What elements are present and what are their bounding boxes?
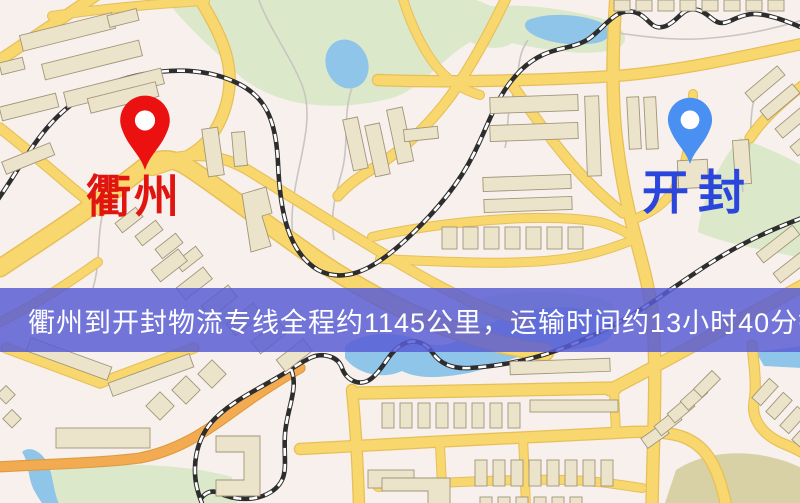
origin-pin-hole <box>135 110 155 130</box>
map-canvas[interactable] <box>0 0 800 503</box>
map-screenshot: 衢州 开封 衢州到开封物流专线全程约1145公里，运输时间约13小时40分钟. <box>0 0 800 503</box>
route-info-text: 衢州到开封物流专线全程约1145公里，运输时间约13小时40分钟. <box>28 301 800 340</box>
destination-pin-icon[interactable] <box>668 98 712 164</box>
destination-pin-body[interactable] <box>668 98 712 164</box>
hill-area <box>664 453 800 503</box>
origin-city-label: 衢州 <box>86 174 182 219</box>
destination-city-label: 开封 <box>642 169 754 216</box>
route-info-banner: 衢州到开封物流专线全程约1145公里，运输时间约13小时40分钟. <box>0 288 800 352</box>
destination-pin-hole <box>681 110 700 129</box>
